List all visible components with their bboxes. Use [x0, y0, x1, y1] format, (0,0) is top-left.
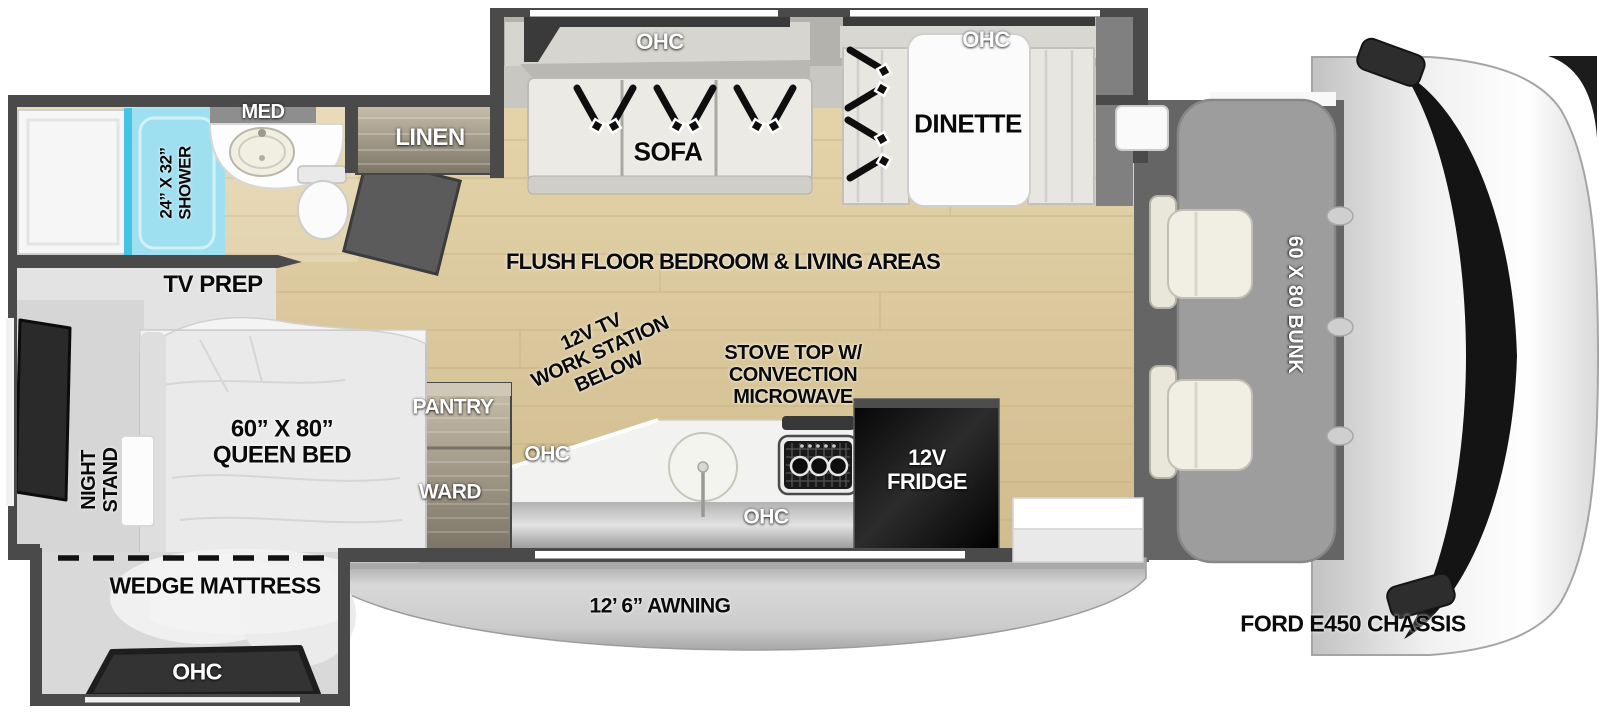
shower-word-text: SHOWER [176, 146, 195, 220]
tv-prep-label: TV PREP [163, 272, 262, 298]
ohc-kitchen-upper-label: OHC [524, 442, 569, 465]
sofa-label: SOFA [634, 138, 703, 167]
queen-bed-line2: QUEEN BED [213, 443, 351, 469]
fridge-line1: 12V [887, 446, 967, 470]
shower-pan [18, 110, 128, 254]
entry-steps [1013, 498, 1143, 562]
bathroom-door [344, 158, 460, 274]
queen-bed-label: 60” X 80” QUEEN BED [213, 417, 351, 470]
bunk-front-cabinet [1116, 106, 1168, 150]
wedge-mattress-label: WEDGE MATTRESS [109, 573, 320, 598]
ohc-kitchen-lower-label: OHC [743, 505, 788, 528]
night-stand [121, 436, 154, 526]
shower-size-text: 24” X 32” [157, 146, 176, 220]
range-hood [782, 416, 855, 430]
queen-bed-line1: 60” X 80” [213, 417, 351, 443]
med-label: MED [242, 101, 285, 123]
night-stand-label: NIGHT STAND [78, 448, 122, 513]
ward-label: WARD [419, 480, 481, 503]
shower-label: 24” X 32” SHOWER [157, 146, 194, 220]
stove-line1: STOVE TOP W/ [724, 342, 861, 364]
rv-floorplan: MED 24” X 32” SHOWER LINEN OHC SOFA OHC … [0, 0, 1600, 712]
tv-icon [16, 320, 70, 500]
linen-label: LINEN [395, 125, 465, 151]
dinette-label: DINETTE [914, 110, 1022, 139]
chassis-label: FORD E450 CHASSIS [1240, 611, 1465, 636]
stove-line2: CONVECTION [724, 364, 861, 386]
stove-icon [779, 436, 857, 494]
toilet [298, 166, 348, 239]
flush-floor-label: FLUSH FLOOR BEDROOM & LIVING AREAS [506, 250, 940, 274]
awning-label: 12’ 6” AWNING [590, 594, 731, 617]
cabover-bunk [1178, 100, 1335, 562]
ohc-sofa-label: OHC [636, 30, 683, 54]
stove-line3: MICROWAVE [724, 386, 861, 408]
ohc-dinette-label: OHC [962, 28, 1009, 52]
fridge-line2: FRIDGE [887, 470, 967, 494]
ohc-wedge-label: OHC [172, 659, 222, 684]
fridge-label: 12V FRIDGE [887, 446, 967, 494]
driver-seat [1150, 196, 1252, 308]
stove-label: STOVE TOP W/ CONVECTION MICROWAVE [724, 342, 861, 408]
bunk-label: 60 X 80 BUNK [1284, 236, 1306, 374]
awning [348, 558, 1146, 650]
night-stand-line1: NIGHT [78, 448, 100, 513]
night-stand-line2: STAND [100, 448, 122, 513]
passenger-seat [1150, 366, 1252, 478]
pantry-label: PANTRY [413, 395, 494, 418]
